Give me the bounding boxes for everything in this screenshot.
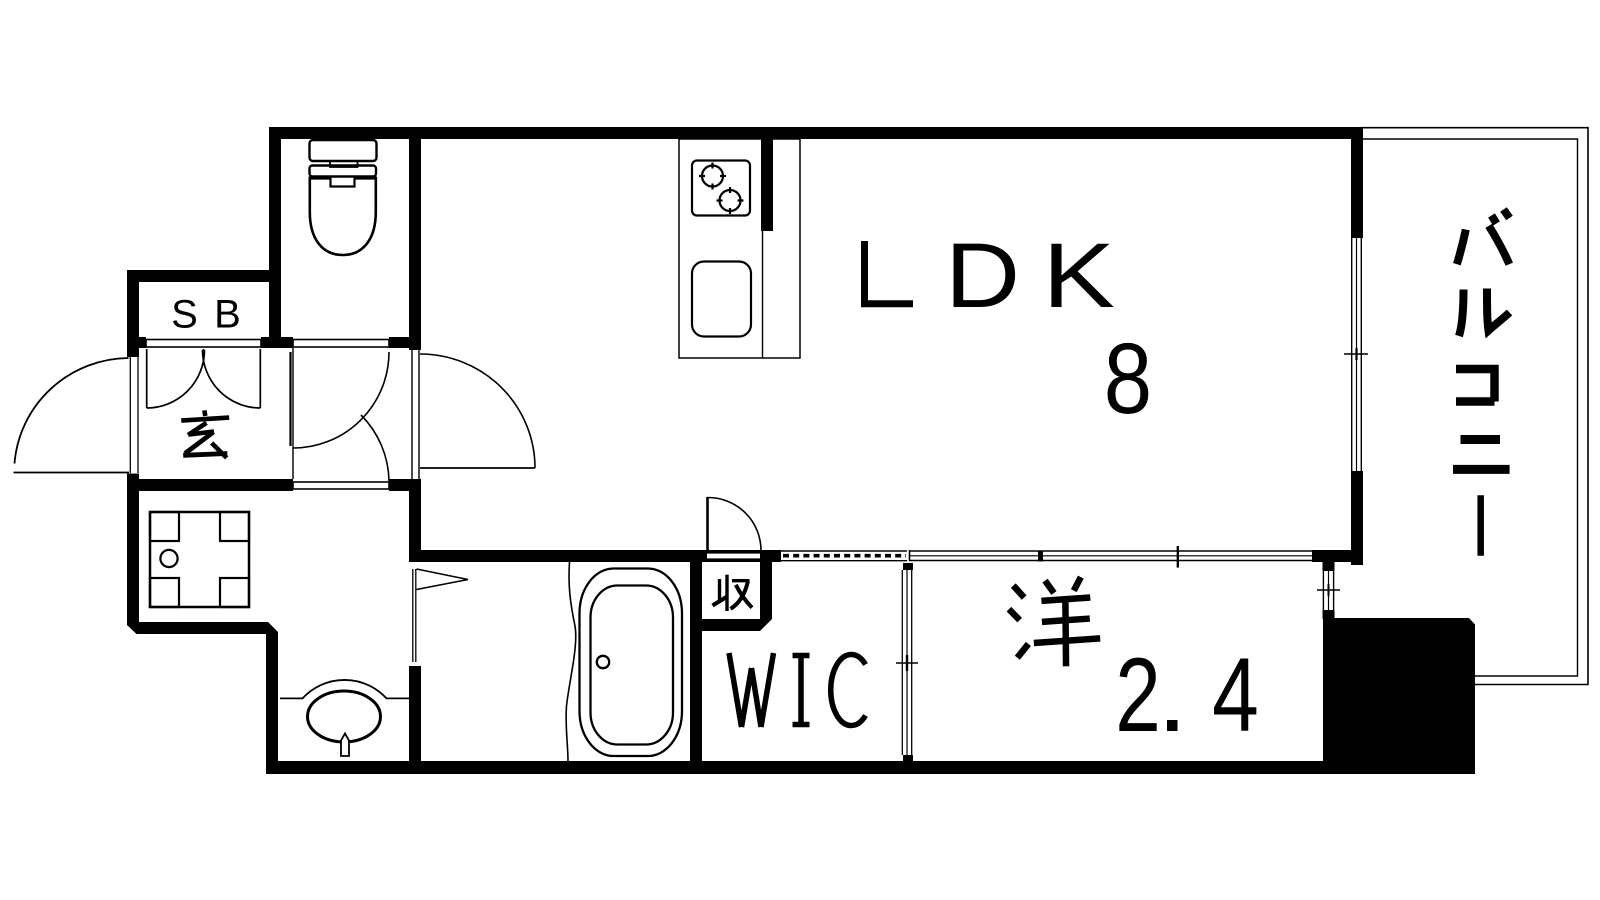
svg-text:B: B — [214, 293, 241, 337]
svg-text:K: K — [1043, 225, 1115, 327]
svg-text:4: 4 — [1212, 637, 1259, 754]
svg-text:D: D — [945, 224, 1020, 327]
svg-text:2: 2 — [1115, 636, 1161, 753]
svg-text:8: 8 — [1104, 322, 1152, 434]
svg-text:S: S — [171, 293, 198, 337]
